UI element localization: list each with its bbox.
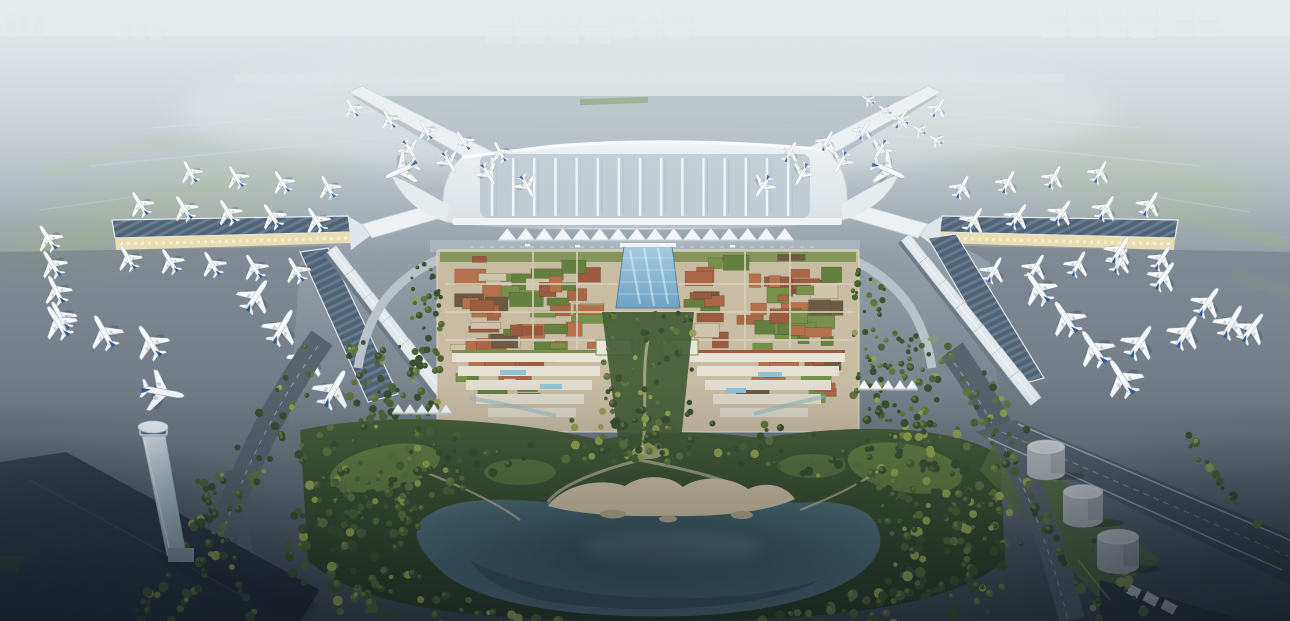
roof-tile <box>751 303 767 315</box>
tree <box>872 280 877 285</box>
tree-highlight <box>377 354 380 357</box>
roof-tile <box>510 325 522 336</box>
tree <box>900 340 904 344</box>
tree <box>412 348 419 355</box>
tree <box>906 349 911 354</box>
tree <box>855 291 858 294</box>
tree <box>866 292 872 298</box>
tree <box>870 299 877 306</box>
roof-tile <box>510 292 544 306</box>
vehicle <box>730 245 735 248</box>
tree-highlight <box>682 319 684 321</box>
tree <box>689 329 696 336</box>
tree <box>879 297 885 303</box>
tree <box>643 337 649 343</box>
airport-aerial-rendering <box>0 0 1290 621</box>
corner-vignette-right <box>860 360 1290 621</box>
roof-tile <box>545 324 568 334</box>
terrace-slab <box>690 352 845 362</box>
vehicle <box>575 245 580 248</box>
tree <box>424 297 427 300</box>
tree-highlight <box>877 307 880 310</box>
terrace-pool <box>500 370 526 375</box>
tree-highlight <box>425 307 429 311</box>
roof-tile <box>778 254 806 260</box>
tree-highlight <box>416 312 419 315</box>
tree <box>361 340 366 345</box>
roof-tile <box>778 295 788 301</box>
tree <box>690 367 694 371</box>
tree <box>437 355 444 362</box>
tree <box>854 280 861 287</box>
terrace-slab <box>452 352 607 362</box>
tree <box>633 355 638 360</box>
upper-soft-haze <box>0 0 1290 235</box>
tree-highlight <box>606 348 608 350</box>
tree <box>666 339 671 344</box>
roof-tile <box>791 325 805 335</box>
tree <box>893 331 897 335</box>
roof-tile <box>450 344 466 350</box>
tree <box>351 353 355 357</box>
tree <box>297 349 300 352</box>
vehicle <box>525 244 530 247</box>
tree-highlight <box>871 328 873 330</box>
tree <box>862 329 868 335</box>
roof-tile <box>749 274 761 288</box>
tree <box>919 343 925 349</box>
tree <box>429 277 432 280</box>
tree <box>673 328 680 335</box>
tree <box>863 310 866 313</box>
tree <box>660 359 663 362</box>
tree-highlight <box>430 268 432 270</box>
tree <box>658 362 662 366</box>
tree-highlight <box>908 357 910 359</box>
tree <box>882 288 886 292</box>
tree <box>661 314 665 318</box>
tree-highlight <box>852 330 855 333</box>
tree <box>648 364 654 370</box>
tree-highlight <box>439 322 442 325</box>
tree <box>878 344 885 351</box>
roof-tile <box>479 273 507 281</box>
tree <box>601 359 607 365</box>
tree <box>852 294 858 300</box>
roof-tile <box>790 269 810 277</box>
rendering-canvas <box>0 0 1290 621</box>
tree <box>434 290 441 297</box>
tree <box>424 346 431 353</box>
tree <box>648 332 655 339</box>
tree <box>672 344 678 350</box>
tree-highlight <box>851 289 853 291</box>
tree-highlight <box>884 338 887 341</box>
tree <box>927 337 931 341</box>
tree-highlight <box>352 346 356 350</box>
roof-tile <box>471 323 501 329</box>
tree <box>856 375 861 380</box>
tree <box>434 351 439 356</box>
roof-tile <box>811 283 838 299</box>
tree <box>640 329 647 336</box>
tree <box>907 344 911 348</box>
canopy-base-beam <box>498 240 794 242</box>
tree <box>909 337 914 342</box>
glass-atrium-spine <box>616 243 680 308</box>
tree-highlight <box>685 315 688 318</box>
tree <box>425 335 432 342</box>
tree-highlight <box>671 327 673 329</box>
tree-highlight <box>871 357 874 360</box>
tree-highlight <box>604 374 608 378</box>
tree <box>423 303 426 306</box>
tree-highlight <box>632 368 634 370</box>
tree <box>944 342 952 350</box>
tree <box>611 314 617 320</box>
tree-highlight <box>303 345 305 347</box>
tree <box>422 262 427 267</box>
terrace-pool <box>758 372 782 377</box>
tree <box>689 318 693 322</box>
terrace-green-roof <box>452 350 607 353</box>
roof-tile <box>694 323 719 337</box>
tree <box>637 354 641 358</box>
corner-vignette-left <box>0 360 430 621</box>
tree <box>433 311 439 317</box>
tree <box>652 311 658 317</box>
tree <box>914 347 919 352</box>
tree-highlight <box>416 266 418 268</box>
tree-highlight <box>432 368 435 371</box>
tree <box>913 333 919 339</box>
roof-tile <box>574 305 604 315</box>
tree <box>864 347 867 350</box>
tree <box>636 338 643 345</box>
tree <box>348 347 351 350</box>
tree <box>411 287 415 291</box>
roof-tile <box>690 292 712 298</box>
tree-highlight <box>422 327 424 329</box>
tree-highlight <box>856 272 859 275</box>
tree-highlight <box>878 313 880 315</box>
roof-tile <box>547 298 569 305</box>
tree <box>676 311 681 316</box>
roof-tile <box>472 256 486 262</box>
tree <box>410 316 414 320</box>
tree <box>436 303 441 308</box>
tree-highlight <box>434 297 436 299</box>
tree <box>659 328 665 334</box>
roof-tile <box>519 326 543 335</box>
tree-highlight <box>398 345 400 347</box>
tree-highlight <box>413 301 415 303</box>
tree-highlight <box>411 277 412 278</box>
tree-highlight <box>866 355 868 357</box>
tree-highlight <box>380 348 383 351</box>
tree-highlight <box>934 337 936 339</box>
roof-tile <box>796 286 814 295</box>
tree <box>611 336 615 340</box>
roof-tile <box>769 276 780 288</box>
terrace-slab <box>458 366 600 376</box>
atrium-top-beam <box>620 243 676 247</box>
tree <box>664 356 670 362</box>
roof-tile <box>821 267 841 282</box>
tree-highlight <box>636 318 638 320</box>
tree <box>875 336 878 339</box>
tree <box>678 349 684 355</box>
tree-highlight <box>949 353 952 356</box>
tree <box>869 277 873 281</box>
tree <box>649 340 657 348</box>
roof-tile <box>551 342 567 349</box>
tree <box>926 352 931 357</box>
roof-tile <box>566 322 582 336</box>
roof-tile <box>562 260 586 273</box>
roof-tile <box>697 313 724 322</box>
terrace-red-roof-band <box>690 350 845 353</box>
tree-highlight <box>427 294 430 297</box>
